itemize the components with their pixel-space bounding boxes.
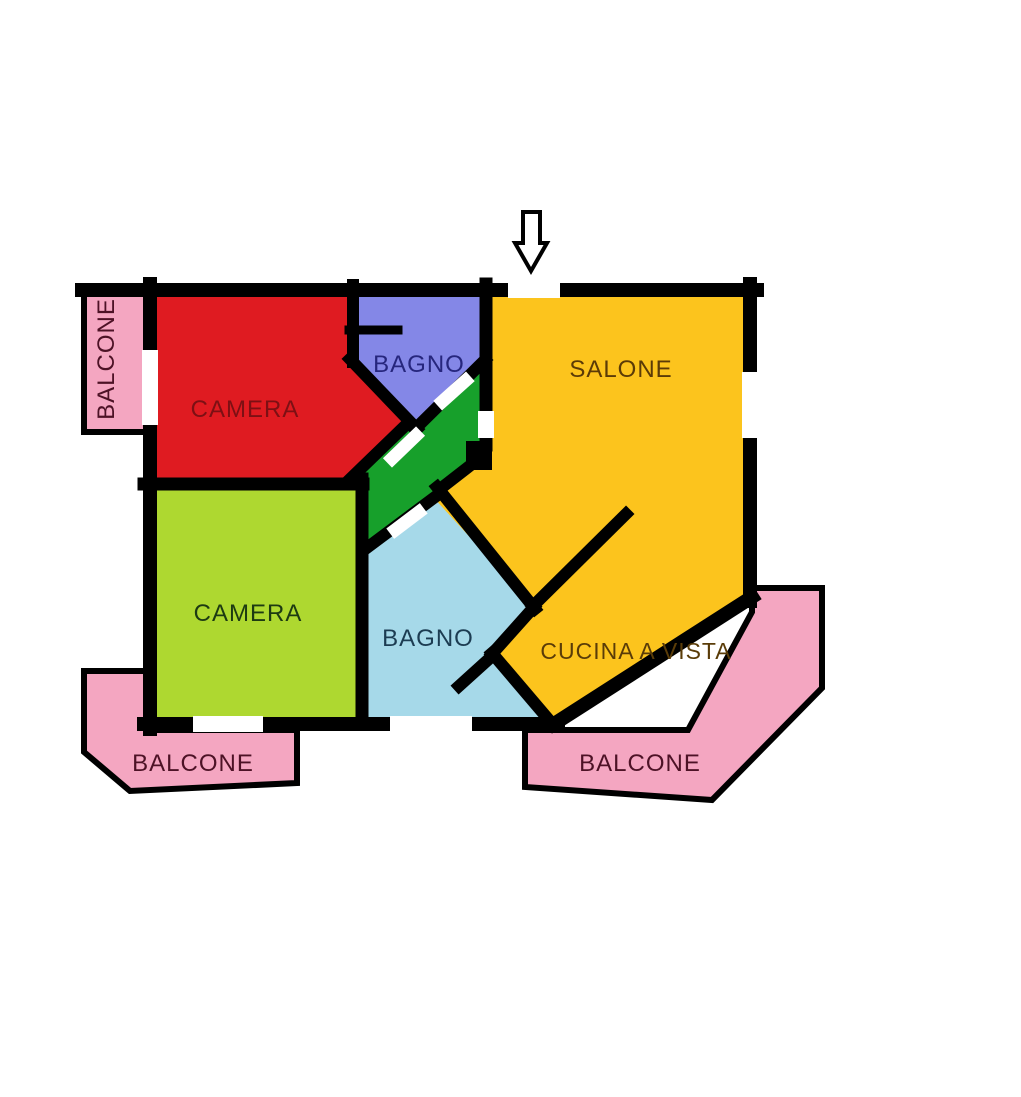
- label-salone: SALONE: [569, 356, 672, 383]
- camera-sud-balcony-door-opening: [193, 716, 263, 732]
- corridoio-salone-opening: [478, 411, 494, 438]
- bagno-sud-window-opening: [390, 716, 472, 732]
- entrance-opening: [508, 281, 560, 298]
- label-bagno-sud: BAGNO: [382, 625, 474, 652]
- floor-plan: BALCONE CAMERA BAGNO SALONE CAMERA BAGNO…: [0, 0, 1021, 1097]
- label-camera-sud: CAMERA: [194, 600, 303, 627]
- label-balcone-sud-ovest: BALCONE: [132, 750, 254, 777]
- label-balcone-sud-est: BALCONE: [579, 750, 701, 777]
- salone-window-opening: [742, 372, 758, 438]
- label-balcone-ovest: BALCONE: [93, 298, 120, 420]
- label-bagno-nord: BAGNO: [373, 351, 465, 378]
- label-camera-nord: CAMERA: [191, 396, 300, 423]
- floor-plan-page: BALCONE CAMERA BAGNO SALONE CAMERA BAGNO…: [0, 0, 1021, 1097]
- balcony-west-door-opening: [142, 350, 158, 425]
- label-cucina: CUCINA A VISTA: [540, 638, 731, 664]
